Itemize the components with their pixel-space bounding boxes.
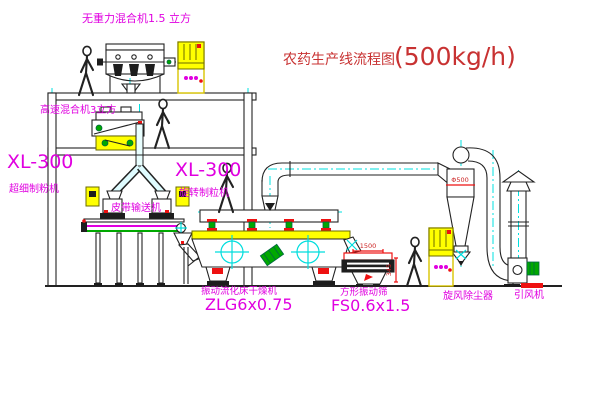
fluid-bed-dryer bbox=[192, 219, 350, 285]
fan-motor bbox=[527, 262, 539, 275]
page-title-capacity: (500kg/h) bbox=[394, 44, 516, 69]
stack-rain-cap bbox=[503, 171, 534, 182]
worker-figure-2 bbox=[155, 99, 169, 148]
label-cyclone: 旋风除尘器 bbox=[443, 292, 493, 302]
mixer-agitators bbox=[113, 55, 155, 76]
gravity-mixer bbox=[97, 44, 176, 93]
cyclone-top-outlet bbox=[453, 147, 469, 163]
dryer-top-flange bbox=[192, 231, 350, 239]
label-fan: 引风机 bbox=[514, 291, 544, 301]
worker-figure-1 bbox=[79, 46, 93, 95]
y-chute bbox=[107, 155, 170, 199]
floor-slab-middle bbox=[48, 148, 256, 155]
label-mill-model: XL-300 bbox=[7, 153, 73, 172]
dryer-hood-header bbox=[200, 210, 338, 222]
process-flow-screenshot: 1500 345 Φ500 bbox=[0, 0, 600, 403]
cyclone-dia-dimension: Φ500 bbox=[451, 176, 469, 184]
label-high-speed-mixer: 高速混合机3立方 bbox=[40, 106, 116, 116]
label-belt-conveyor: 皮带输送机 bbox=[111, 204, 161, 214]
label-granulator-model: XL-300 bbox=[175, 161, 241, 180]
dryer-support-left bbox=[206, 267, 230, 285]
label-dryer-model: ZLG6x0.75 bbox=[205, 297, 293, 313]
worker-figure-4 bbox=[407, 237, 421, 286]
dryer-support-right bbox=[312, 267, 336, 285]
sieve-height-dimension: 345 bbox=[385, 264, 393, 276]
belt-conveyor bbox=[81, 219, 187, 286]
control-cabinet-2 bbox=[429, 228, 453, 286]
induced-draft-fan bbox=[504, 258, 543, 288]
conveyor-legs bbox=[94, 233, 165, 286]
label-sieve-model: FS0.6x1.5 bbox=[331, 298, 410, 314]
label-gravity-mixer: 无重力混合机1.5 立方 bbox=[82, 13, 191, 24]
mixer-discharge-pipe bbox=[136, 124, 143, 155]
label-granulator-name: 旋转制粒机 bbox=[179, 189, 229, 199]
label-mill-name: 超细制粉机 bbox=[9, 185, 59, 195]
sieve-width-dimension: 1500 bbox=[360, 242, 377, 250]
control-cabinet-1 bbox=[178, 42, 204, 93]
fan-base bbox=[521, 283, 543, 288]
page-title: 农药生产线流程图 bbox=[283, 53, 395, 67]
return-duct bbox=[466, 148, 514, 284]
